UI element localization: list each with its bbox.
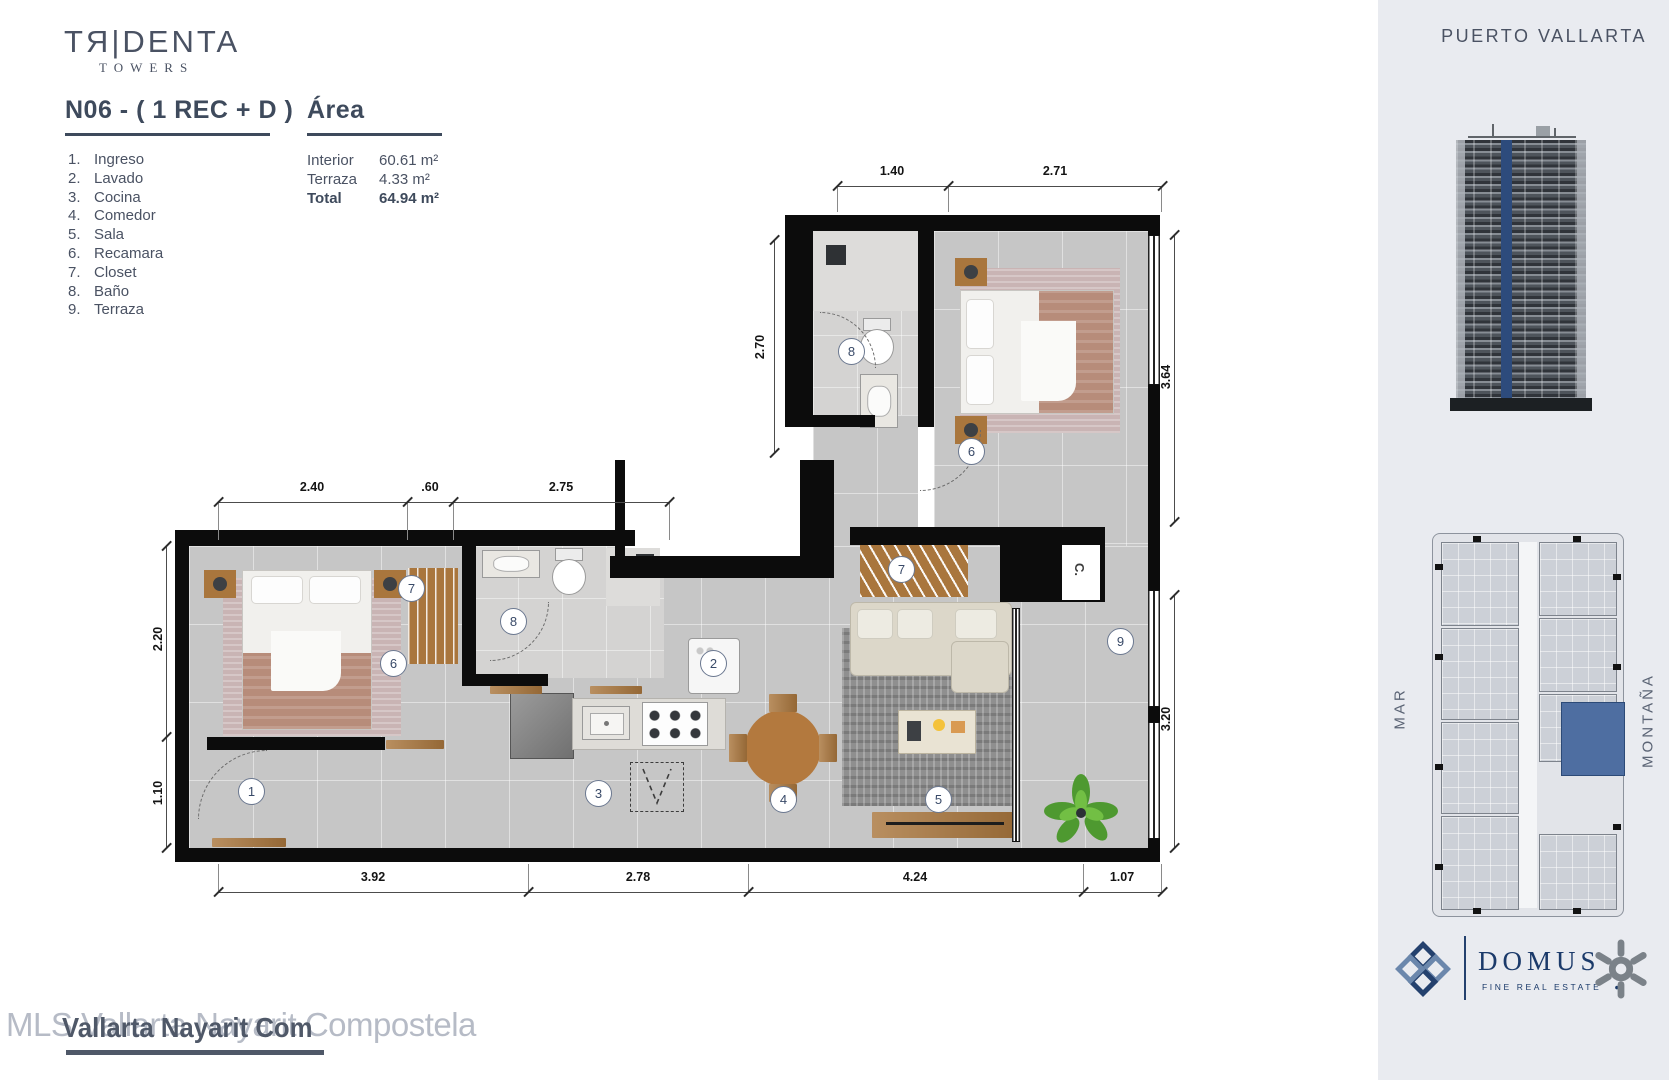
floorplan-sheet: TЯ|DENTA TOWERS N06 - ( 1 REC + D ) Área… — [0, 0, 1669, 1080]
bedroom-lower-bed — [242, 570, 372, 730]
sofa — [850, 602, 1012, 676]
tv-console — [872, 812, 1018, 838]
window — [1148, 235, 1160, 385]
closet-tag: C. — [1072, 563, 1087, 576]
dim-label: 3.64 — [1159, 365, 1173, 389]
legend-item: 7.Closet — [68, 264, 163, 283]
sidebar: PUERTO VALLARTA — [1378, 0, 1669, 1080]
plant — [1042, 772, 1120, 855]
room-marker-bath-lower: 8 — [500, 608, 527, 635]
fridge — [510, 693, 574, 759]
domus-logo-text: DOMUS — [1478, 946, 1601, 977]
domus-divider — [1464, 936, 1466, 1000]
nightstand — [955, 258, 987, 286]
door-leaf — [490, 686, 542, 694]
watermark-overlay: Vallarta Nayarit Com — [62, 1012, 313, 1044]
dim-label: 3.20 — [1159, 707, 1173, 731]
unit-title-rule — [65, 133, 270, 136]
room-marker-bedroom-upper: 6 — [958, 438, 985, 465]
room-marker-dining: 4 — [770, 786, 797, 813]
room-marker-closet-upper: 7 — [888, 556, 915, 583]
dim-label: 2.71 — [1043, 164, 1067, 178]
dim-label: 1.10 — [151, 781, 165, 805]
dim-label: 4.24 — [903, 870, 927, 884]
nightstand — [204, 570, 236, 598]
legend-item: 2.Lavado — [68, 170, 163, 189]
floor-plan: C. — [160, 150, 1190, 920]
tower-antenna — [1468, 136, 1576, 138]
shower-upper — [813, 231, 918, 311]
key-plan — [1432, 533, 1624, 917]
window — [1148, 590, 1160, 707]
room-marker-closet-lower: 7 — [398, 575, 425, 602]
area-title: Área — [307, 96, 365, 125]
stove — [642, 702, 708, 746]
shower-head-icon — [826, 245, 846, 265]
dim-label: 1.07 — [1110, 870, 1134, 884]
entry-door-leaf — [212, 838, 286, 847]
area-title-rule — [307, 133, 442, 136]
legend-item: 4.Comedor — [68, 207, 163, 226]
city-label: PUERTO VALLARTA — [1441, 26, 1647, 47]
domus-pinwheel-icon — [1394, 940, 1452, 1003]
dim-label: 3.92 — [361, 870, 385, 884]
orientation-montana: MONTAÑA — [1640, 651, 1657, 791]
tower-antenna-mast — [1554, 128, 1556, 138]
dim-label: 2.40 — [300, 480, 324, 494]
room-marker-terrace: 9 — [1107, 628, 1134, 655]
terrace-glass-door — [1012, 608, 1020, 842]
legend-item: 6.Recamara — [68, 245, 163, 264]
dim-label: 2.70 — [753, 335, 767, 359]
legend-item: 3.Cocina — [68, 189, 163, 208]
tower-roof-box — [1536, 126, 1550, 136]
legend-item: 5.Sala — [68, 226, 163, 245]
dim-label: .60 — [421, 480, 438, 494]
tridenta-logo-sub: TOWERS — [99, 60, 194, 76]
exterior-void — [615, 460, 800, 560]
legend-item: 8.Baño — [68, 283, 163, 302]
kitchen-sink — [582, 706, 630, 740]
room-marker-laundry: 2 — [700, 650, 727, 677]
orientation-mar: MAR — [1392, 639, 1409, 779]
dining-table — [735, 700, 831, 796]
room-marker-bath-upper: 8 — [838, 338, 865, 365]
coffee-table — [898, 710, 976, 754]
bedroom-upper-bed — [960, 290, 1114, 414]
room-marker-entry: 1 — [238, 778, 265, 805]
dim-label: 2.20 — [151, 627, 165, 651]
toilet-lower — [552, 548, 586, 594]
tower-antenna-mast — [1492, 124, 1494, 138]
window — [1148, 722, 1160, 839]
dim-label: 2.75 — [549, 480, 573, 494]
tridenta-logo: TЯ|DENTA — [64, 24, 240, 60]
tower-base — [1450, 398, 1592, 411]
refrigerator-dashed-outline — [630, 762, 684, 812]
tridenta-emblem-icon — [1590, 938, 1652, 1005]
room-marker-living: 5 — [925, 786, 952, 813]
watermark-underline — [66, 1050, 324, 1055]
dim-label: 1.40 — [880, 164, 904, 178]
highlighted-unit — [1561, 702, 1625, 776]
room-marker-kitchen: 3 — [585, 780, 612, 807]
tv-icon — [886, 822, 1004, 825]
legend-item: 1.Ingreso — [68, 151, 163, 170]
room-legend: 1.Ingreso 2.Lavado 3.Cocina 4.Comedor 5.… — [68, 151, 163, 320]
unit-title: N06 - ( 1 REC + D ) — [65, 96, 293, 125]
door-leaf — [386, 740, 444, 749]
dim-label: 2.78 — [626, 870, 650, 884]
door-leaf — [590, 686, 642, 694]
legend-item: 9.Terraza — [68, 301, 163, 320]
room-marker-bedroom-lower: 6 — [380, 650, 407, 677]
tower-illustration — [1456, 140, 1586, 398]
vanity-lower — [482, 550, 540, 578]
